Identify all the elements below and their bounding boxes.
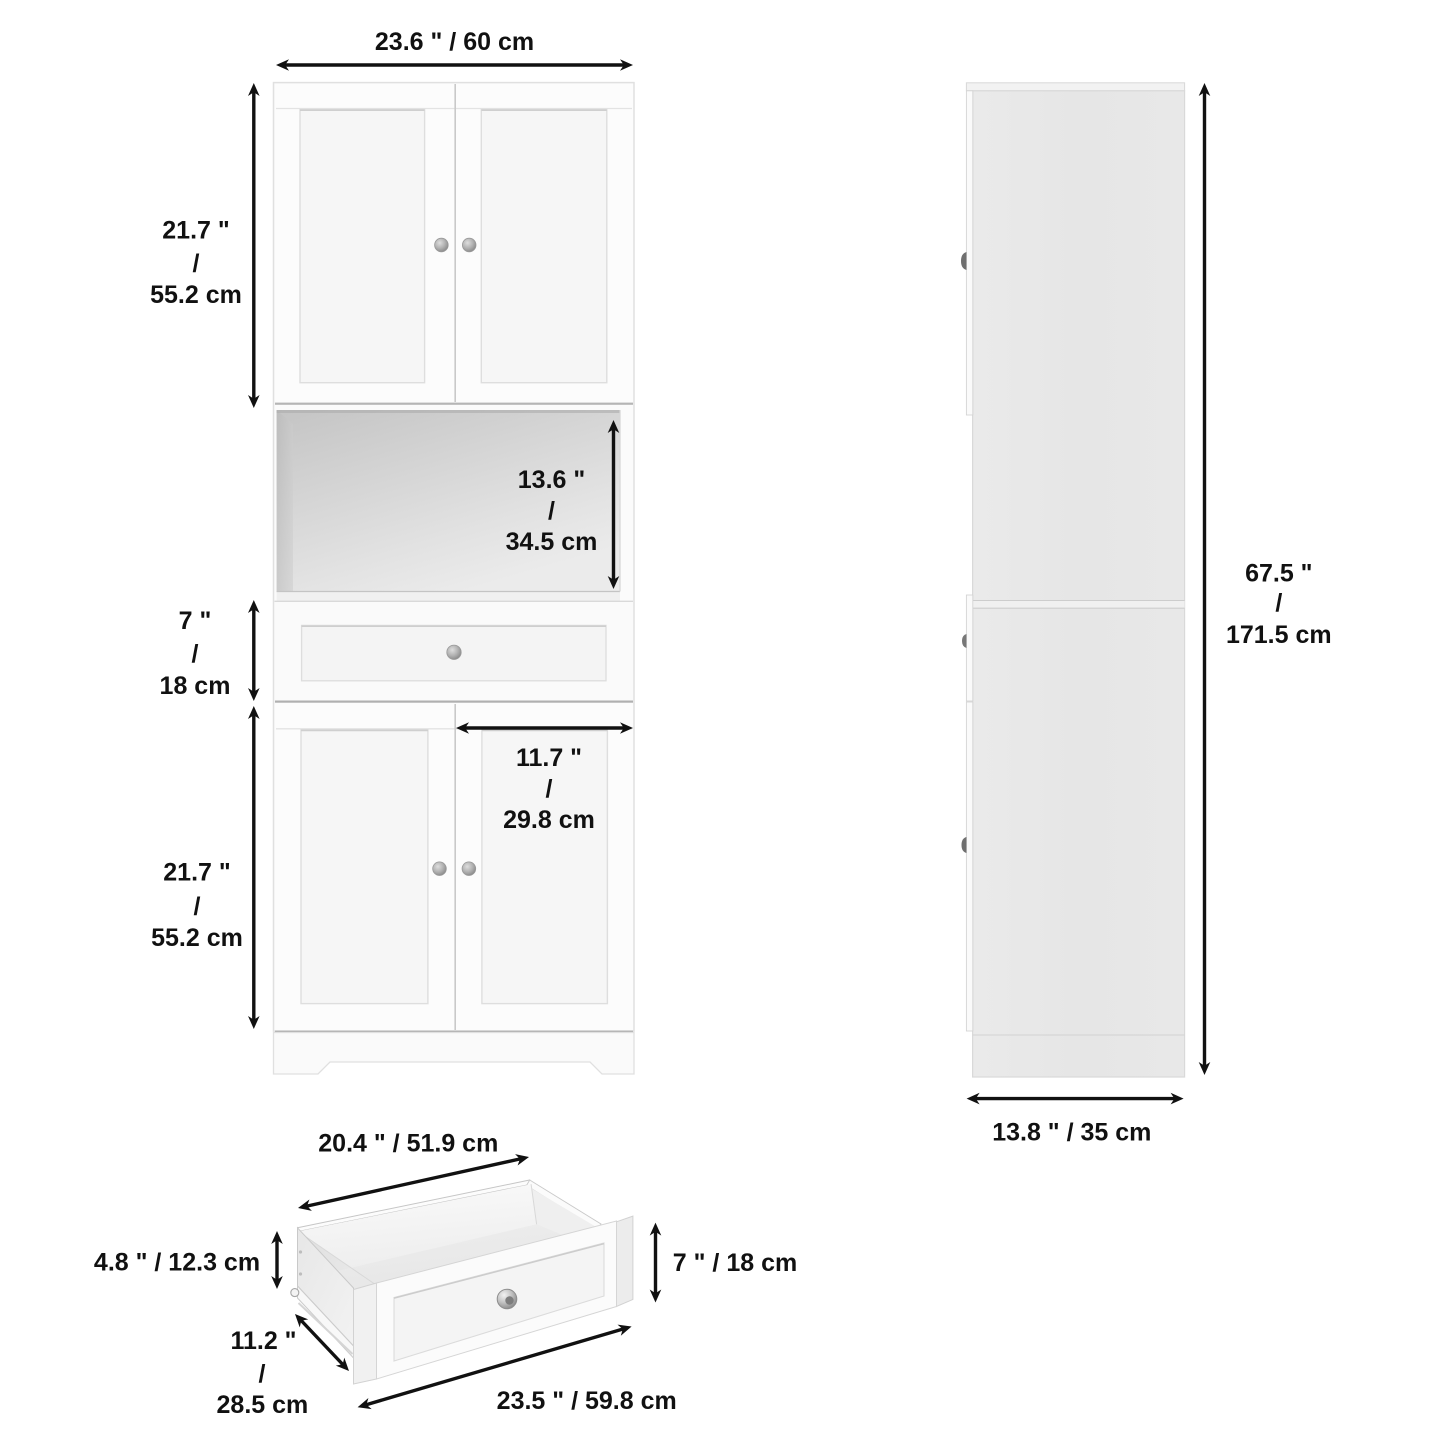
svg-text:55.2 cm: 55.2 cm: [151, 924, 243, 952]
svg-text:29.8 cm: 29.8 cm: [503, 806, 595, 834]
svg-text:20.4 " / 51.9 cm: 20.4 " / 51.9 cm: [318, 1130, 498, 1158]
svg-text:18 cm: 18 cm: [160, 672, 231, 700]
svg-text:55.2 cm: 55.2 cm: [150, 281, 242, 309]
svg-text:7 ": 7 ": [179, 607, 212, 635]
svg-text:/: /: [194, 892, 201, 920]
svg-text:/: /: [548, 497, 555, 525]
svg-text:13.6 ": 13.6 ": [518, 466, 585, 494]
svg-text:11.2 ": 11.2 ": [230, 1327, 296, 1355]
svg-text:/: /: [1275, 589, 1282, 617]
svg-text:23.5 " / 59.8 cm: 23.5 " / 59.8 cm: [497, 1387, 677, 1415]
svg-text:171.5 cm: 171.5 cm: [1226, 621, 1332, 649]
svg-text:/: /: [259, 1360, 266, 1388]
svg-text:34.5 cm: 34.5 cm: [506, 528, 598, 556]
svg-text:/: /: [546, 775, 553, 803]
svg-text:23.6 " / 60 cm: 23.6 " / 60 cm: [375, 28, 534, 56]
svg-text:21.7 ": 21.7 ": [162, 216, 229, 244]
svg-text:13.8 " / 35 cm: 13.8 " / 35 cm: [992, 1119, 1151, 1147]
svg-text:11.7 ": 11.7 ": [516, 744, 582, 772]
svg-text:4.8 " / 12.3 cm: 4.8 " / 12.3 cm: [94, 1249, 260, 1277]
svg-text:/: /: [193, 250, 200, 278]
svg-text:/: /: [192, 640, 199, 668]
svg-text:7 " / 18 cm: 7 " / 18 cm: [673, 1249, 797, 1277]
svg-text:67.5 ": 67.5 ": [1245, 559, 1312, 587]
svg-text:21.7 ": 21.7 ": [163, 859, 230, 887]
svg-text:28.5 cm: 28.5 cm: [217, 1391, 309, 1419]
